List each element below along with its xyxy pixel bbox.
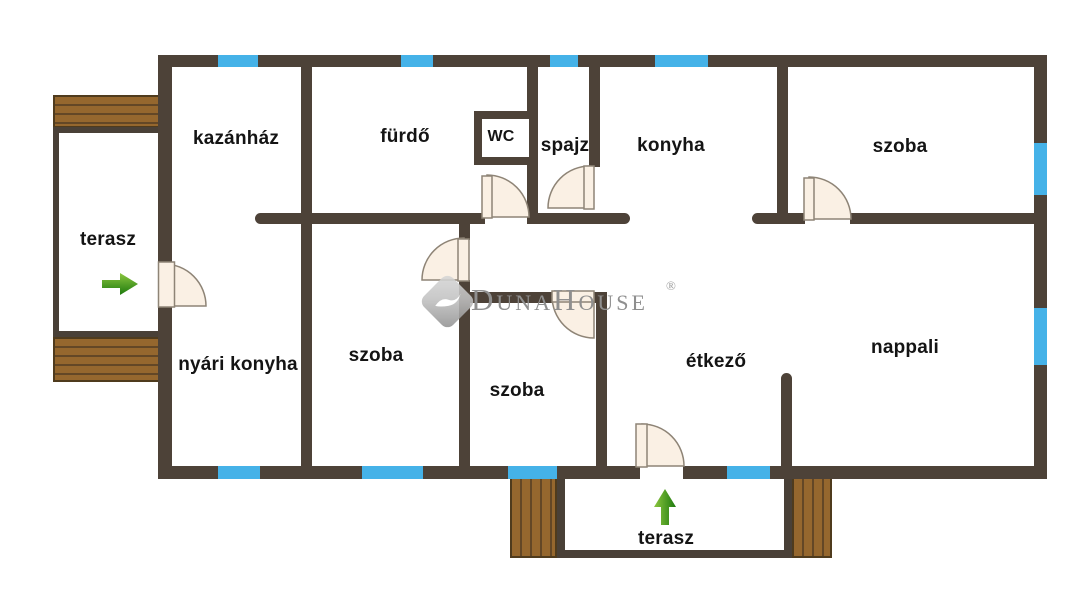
registered-trademark-icon: ® [666,278,676,294]
door-terasz-to-nyari-konyha [159,262,207,307]
room-label-kazanhaz: kazánház [193,128,279,150]
logo-wave-icon [430,284,465,319]
room-label-szoba-top-right: szoba [873,136,928,158]
room-label-spajz: spajz [541,135,590,157]
room-label-szoba-middle: szoba [490,380,545,402]
room-label-konyha: konyha [637,135,705,157]
room-label-nyari-konyha: nyári konyha [178,354,298,376]
room-label-terasz-left: terasz [80,229,136,251]
watermark-brand-text: DunaHouse [471,284,648,315]
door-spajz [548,166,594,209]
room-label-terasz-bottom: terasz [638,528,694,550]
floor-plan: DunaHouse ® kazánház fürdő WC spajz kony… [0,0,1087,600]
door-furdo [482,175,529,218]
room-label-furdo: fürdő [380,126,430,148]
room-label-nappali: nappali [871,337,939,359]
entrance-arrow-right-icon [100,271,140,297]
room-label-wc: WC [487,128,514,146]
entrance-arrow-up-icon [652,487,678,527]
room-label-etkezo: étkező [686,351,746,373]
room-label-szoba-bottom-left: szoba [349,345,404,367]
door-etkezo-to-terasz [636,424,684,467]
door-szoba-top-right [804,177,851,220]
